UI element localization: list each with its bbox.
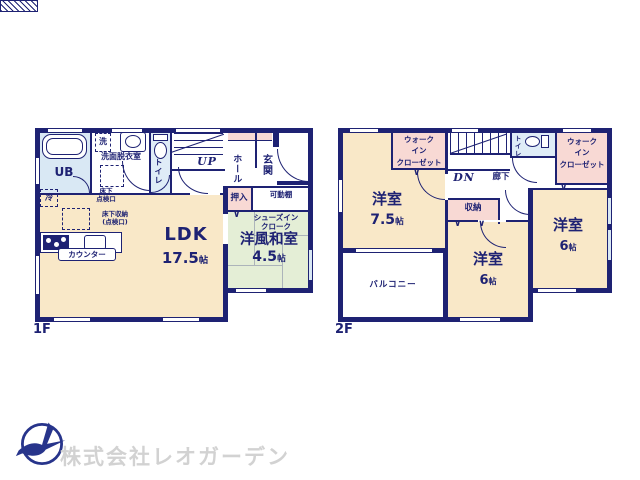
toilet-icon-1f-tank — [153, 134, 168, 141]
underfloor-hatch-line2: 点検口 — [96, 195, 116, 203]
label-movable-shelf: 可動棚 — [256, 190, 306, 199]
wall — [273, 133, 279, 147]
label-stairs-up: UP — [192, 155, 222, 169]
window — [163, 317, 199, 322]
wall — [528, 188, 612, 190]
label-corridor: 廊下 — [483, 172, 519, 183]
label-bedroom2-size: 6帖 — [462, 273, 514, 289]
label-bedroom1-name: 洋室 — [355, 190, 419, 209]
window — [563, 128, 591, 133]
label-toilet-2f: トイレ — [513, 133, 521, 159]
wall — [223, 288, 228, 322]
underfloor-hatch-line1: 床下 — [100, 187, 113, 195]
wall — [446, 198, 500, 200]
wic-left-line2: イン — [412, 146, 427, 155]
wall — [338, 128, 343, 322]
washitsu-size-unit: 帖 — [277, 254, 286, 264]
vanity-sink-bowl — [125, 135, 141, 148]
bedroom3-size-value: 6 — [559, 239, 568, 254]
label-floor-2f: 2F — [335, 322, 361, 338]
stove-burner — [61, 237, 66, 242]
window — [308, 250, 313, 280]
closet-chevron: ∨ — [560, 184, 567, 193]
floorplan-canvas: ∨ UB 洗 洗面脱衣室 トイレ UP ホール 玄関 押入 可動棚 冷 床下 点… — [0, 0, 640, 480]
label-ldk-name: LDK — [148, 224, 224, 247]
ldk-size-value: 17.5 — [162, 249, 199, 267]
label-bedroom2-name: 洋室 — [458, 250, 518, 269]
toilet-icon-2f-bowl — [525, 136, 540, 147]
label-toilet-1f: トイレ — [153, 152, 163, 190]
window — [236, 288, 266, 293]
label-ldk-size: 17.5帖 — [140, 249, 230, 268]
underfloor-storage-box — [62, 208, 90, 230]
washroom-hatch-box — [100, 165, 124, 187]
wall — [253, 210, 313, 212]
closet-chevron: ∨ — [478, 220, 485, 229]
wall — [170, 128, 172, 195]
window — [338, 180, 343, 212]
bedroom2-size-unit: 帖 — [489, 277, 497, 286]
label-entrance: 玄関 — [259, 147, 272, 183]
label-wic-left: ウォーク イン クローゼット — [392, 134, 446, 168]
window — [54, 317, 90, 322]
wic-left-line1: ウォーク — [404, 135, 434, 144]
wall — [443, 251, 448, 322]
stove-burner — [54, 242, 59, 247]
label-washitsu-size: 4.5帖 — [243, 249, 295, 267]
label-bedroom3-name: 洋室 — [536, 216, 600, 235]
movable-shelf-hatch — [0, 0, 38, 12]
balcony-slider-window — [356, 248, 432, 253]
closet-chevron: ∨ — [413, 169, 420, 178]
label-washroom: 洗面脱衣室 — [92, 152, 150, 162]
label-floor-1f: 1F — [33, 322, 59, 338]
toilet-icon-2f-tank — [541, 135, 549, 148]
window — [176, 128, 220, 133]
label-ub: UB — [48, 165, 80, 180]
closet-chevron: ∨ — [233, 211, 240, 220]
window — [452, 128, 478, 133]
label-washitsu-name: 洋風和室 — [233, 231, 305, 249]
stove-burner — [46, 238, 51, 243]
label-storage-2f: 収納 — [448, 203, 498, 214]
label-stairs-dn: DN — [450, 171, 478, 185]
label-bedroom1-size: 7.5帖 — [358, 212, 416, 230]
door-opening — [445, 174, 448, 200]
label-shoes-cloak: シューズイン クローク — [246, 213, 306, 232]
wic-right-line3: クローゼット — [560, 160, 605, 169]
window — [350, 128, 378, 133]
wall — [255, 128, 257, 168]
wic-right-line2: イン — [575, 148, 590, 157]
wic-right-line1: ウォーク — [567, 137, 597, 146]
label-underfloor-storage: 床下収納 (点検口) — [90, 210, 140, 226]
closet-chevron: ∨ — [454, 220, 461, 229]
bedroom1-size-unit: 帖 — [395, 217, 404, 227]
wic-left-line3: クローゼット — [397, 158, 442, 167]
window — [460, 317, 500, 322]
label-counter: カウンター — [58, 248, 116, 261]
label-hall: ホール — [230, 148, 241, 190]
window — [607, 198, 612, 224]
window — [538, 288, 576, 293]
bedroom3-size-unit: 帖 — [569, 243, 577, 252]
underfloor-storage-line2: (点検口) — [102, 218, 127, 226]
ldk-size-unit: 帖 — [199, 255, 208, 266]
company-name: 株式会社レオガーデン — [60, 441, 290, 471]
label-bedroom3-size: 6帖 — [540, 239, 596, 255]
shoes-cloak-line1: シューズイン — [254, 213, 299, 222]
label-fridge: 冷 — [41, 193, 57, 203]
window — [35, 256, 40, 294]
wall — [510, 131, 512, 158]
label-balcony: バルコニー — [353, 280, 433, 291]
bedroom2-size-value: 6 — [479, 273, 488, 288]
window — [607, 230, 612, 260]
label-washer: 洗 — [95, 137, 111, 147]
window — [48, 128, 82, 133]
wall — [338, 317, 531, 322]
label-underfloor-hatch: 床下 点検口 — [86, 187, 126, 203]
stairs-landing-line — [450, 153, 510, 155]
bedroom1-size-value: 7.5 — [370, 212, 395, 228]
bathtub-inner — [46, 138, 83, 155]
underfloor-storage-line1: 床下収納 — [102, 210, 128, 218]
window — [35, 158, 40, 184]
washitsu-size-value: 4.5 — [252, 249, 277, 265]
label-oshiire: 押入 — [225, 193, 253, 204]
label-wic-right: ウォーク イン クローゼット — [555, 136, 609, 170]
